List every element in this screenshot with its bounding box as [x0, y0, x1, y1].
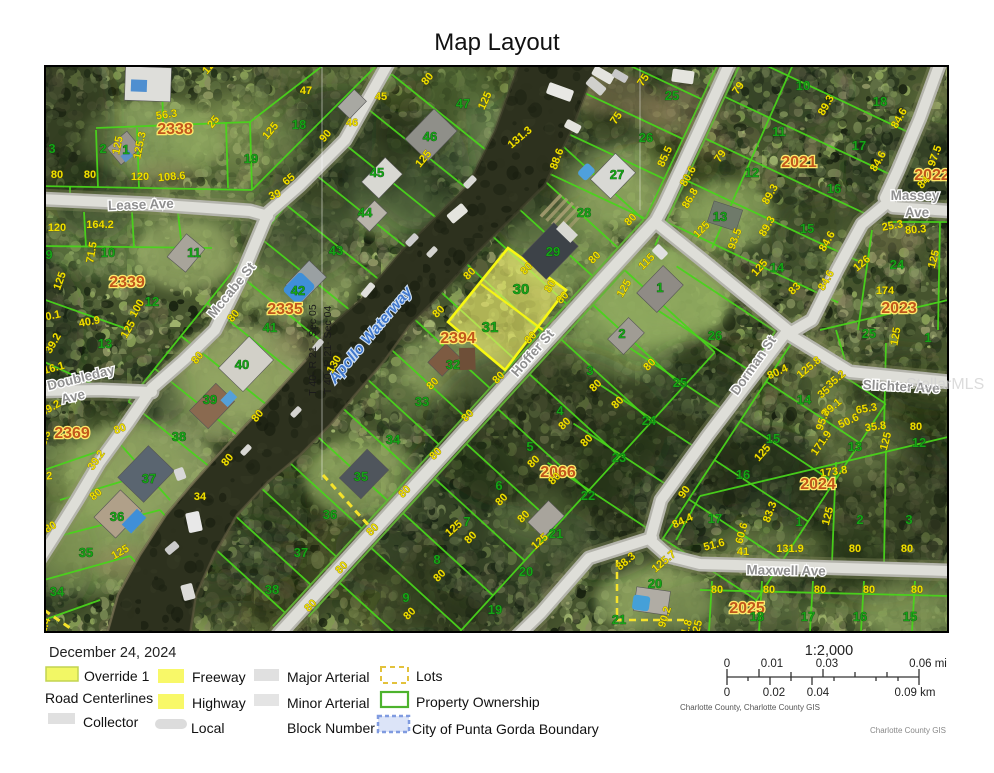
svg-text:41: 41 [263, 320, 277, 335]
svg-text:34: 34 [386, 432, 401, 447]
svg-text:35: 35 [79, 545, 93, 560]
svg-text:30: 30 [513, 281, 530, 298]
svg-text:0.04: 0.04 [807, 687, 830, 699]
svg-text:33: 33 [415, 394, 429, 409]
svg-text:174: 174 [876, 285, 895, 297]
svg-text:15: 15 [766, 431, 780, 446]
svg-text:9: 9 [45, 247, 52, 262]
svg-text:80: 80 [763, 584, 775, 596]
svg-text:11: 11 [772, 124, 786, 139]
svg-text:19: 19 [244, 151, 258, 166]
svg-text:23: 23 [612, 450, 626, 465]
svg-text:2394: 2394 [440, 330, 476, 347]
svg-text:80: 80 [863, 584, 875, 596]
svg-text:13: 13 [848, 439, 862, 454]
svg-text:25: 25 [673, 375, 687, 390]
svg-text:Block Number: Block Number [287, 720, 375, 736]
svg-text:2339: 2339 [109, 274, 145, 291]
svg-text:39.2: 39.2 [31, 470, 53, 484]
svg-text:34: 34 [50, 584, 65, 599]
svg-text:80: 80 [51, 169, 63, 181]
svg-text:16: 16 [827, 181, 841, 196]
svg-text:Charlotte County, Charlotte Co: Charlotte County, Charlotte County GIS [680, 703, 820, 712]
svg-text:0.01: 0.01 [761, 658, 783, 670]
svg-text:3: 3 [586, 363, 593, 378]
svg-text:12: 12 [912, 435, 926, 450]
svg-text:Charlotte County GIS: Charlotte County GIS [870, 726, 946, 735]
svg-text:80: 80 [711, 584, 723, 596]
svg-text:38: 38 [265, 582, 279, 597]
svg-text:2024: 2024 [800, 476, 836, 493]
svg-text:Road Centerlines: Road Centerlines [45, 690, 153, 706]
svg-text:164.2: 164.2 [86, 219, 114, 231]
svg-text:Property Ownership: Property Ownership [416, 694, 540, 710]
svg-text:12: 12 [145, 294, 159, 309]
svg-text:38: 38 [172, 429, 186, 444]
svg-text:13: 13 [713, 209, 727, 224]
svg-text:40: 40 [235, 357, 249, 372]
svg-text:1:2,000: 1:2,000 [805, 643, 853, 659]
svg-text:35: 35 [354, 469, 368, 484]
svg-text:18: 18 [873, 94, 887, 109]
svg-text:32: 32 [446, 357, 460, 372]
svg-text:Major Arterial: Major Arterial [287, 669, 369, 685]
svg-text:December 24, 2024: December 24, 2024 [49, 645, 176, 661]
svg-text:17: 17 [708, 511, 722, 526]
svg-text:22: 22 [581, 488, 595, 503]
svg-text:20: 20 [648, 576, 662, 591]
svg-text:21: 21 [549, 526, 563, 541]
svg-text:39: 39 [203, 392, 217, 407]
svg-text:24: 24 [642, 413, 657, 428]
svg-text:43: 43 [329, 243, 343, 258]
svg-text:6: 6 [495, 478, 502, 493]
svg-text:Maxwell Ave: Maxwell Ave [746, 562, 826, 578]
svg-text:36: 36 [110, 509, 124, 524]
svg-text:28: 28 [577, 205, 591, 220]
svg-text:Highway: Highway [192, 695, 246, 711]
svg-text:Lease Ave: Lease Ave [108, 196, 175, 213]
svg-text:0.06 mi: 0.06 mi [909, 658, 947, 670]
svg-text:2338: 2338 [157, 121, 193, 138]
svg-text:Lots: Lots [416, 668, 442, 684]
svg-text:42: 42 [291, 283, 305, 298]
svg-text:21: 21 [612, 612, 626, 627]
svg-text:2: 2 [856, 512, 863, 527]
svg-text:T 40- R 21 - Sec 05: T 40- R 21 - Sec 05 [307, 304, 319, 396]
svg-text:31: 31 [482, 319, 499, 336]
svg-text:2335: 2335 [267, 301, 303, 318]
svg-text:15: 15 [800, 221, 814, 236]
svg-text:80: 80 [910, 421, 922, 433]
svg-text:0.03: 0.03 [816, 658, 838, 670]
svg-text:80: 80 [901, 543, 913, 555]
svg-text:47: 47 [300, 85, 312, 97]
svg-text:16: 16 [736, 467, 750, 482]
svg-text:Collector: Collector [83, 714, 139, 730]
svg-text:StellarMLS: StellarMLS [906, 376, 984, 393]
svg-text:19: 19 [488, 602, 502, 617]
svg-text:0: 0 [724, 658, 730, 670]
svg-text:41: 41 [737, 546, 749, 558]
svg-text:44: 44 [358, 205, 373, 220]
svg-text:45: 45 [375, 91, 387, 103]
svg-text:27: 27 [610, 167, 624, 182]
svg-text:15: 15 [903, 609, 917, 624]
svg-text:3: 3 [48, 141, 55, 156]
svg-text:37: 37 [294, 545, 308, 560]
svg-text:29: 29 [546, 244, 560, 259]
svg-text:36: 36 [323, 507, 337, 522]
svg-text:Override 1: Override 1 [84, 668, 150, 684]
svg-text:2021: 2021 [781, 154, 817, 171]
svg-text:11: 11 [187, 245, 201, 260]
svg-text:24: 24 [890, 257, 905, 272]
svg-text:Local: Local [191, 720, 224, 736]
svg-text:2023: 2023 [881, 300, 917, 317]
svg-text:2: 2 [618, 326, 625, 341]
svg-text:25: 25 [862, 326, 876, 341]
svg-text:10: 10 [796, 78, 810, 93]
svg-text:17: 17 [852, 138, 866, 153]
svg-text:2: 2 [99, 141, 106, 156]
svg-text:3: 3 [905, 512, 912, 527]
svg-text:12: 12 [745, 165, 759, 180]
svg-text:108.6: 108.6 [158, 170, 186, 184]
svg-text:80: 80 [849, 543, 861, 555]
svg-text:14: 14 [797, 392, 812, 407]
svg-text:46: 46 [423, 129, 437, 144]
svg-text:0.02: 0.02 [763, 687, 785, 699]
svg-text:18: 18 [292, 117, 306, 132]
svg-text:1: 1 [656, 280, 663, 295]
svg-text:80: 80 [814, 584, 826, 596]
svg-text:Map Layout: Map Layout [434, 29, 560, 56]
svg-text:0: 0 [753, 19, 759, 31]
svg-text:46: 46 [346, 117, 358, 129]
svg-text:10: 10 [101, 245, 115, 260]
svg-text:Freeway: Freeway [192, 669, 246, 685]
svg-text:47: 47 [456, 96, 470, 111]
svg-text:20: 20 [519, 564, 533, 579]
svg-text:16: 16 [853, 609, 867, 624]
svg-text:80: 80 [911, 584, 923, 596]
svg-text:T 40- R 21- Sec 04: T 40- R 21- Sec 04 [322, 306, 334, 395]
svg-text:5: 5 [526, 439, 533, 454]
svg-text:80.3: 80.3 [905, 223, 927, 237]
svg-text:45: 45 [370, 165, 384, 180]
svg-text:9: 9 [402, 590, 409, 605]
svg-text:1: 1 [924, 330, 931, 345]
svg-text:120: 120 [48, 222, 66, 234]
svg-text:1: 1 [795, 514, 802, 529]
svg-text:0.09 km: 0.09 km [895, 687, 936, 699]
svg-text:Massey: Massey [891, 188, 940, 203]
svg-text:17: 17 [801, 609, 815, 624]
svg-text:25: 25 [665, 88, 679, 103]
svg-text:8: 8 [433, 552, 440, 567]
svg-text:2369: 2369 [54, 425, 90, 442]
svg-text:26: 26 [708, 328, 722, 343]
svg-text:Ave: Ave [905, 205, 930, 220]
svg-text:131.9: 131.9 [776, 543, 804, 555]
svg-text:Minor Arterial: Minor Arterial [287, 695, 369, 711]
svg-text:120: 120 [131, 171, 149, 183]
svg-text:37: 37 [142, 471, 156, 486]
svg-text:14: 14 [770, 260, 785, 275]
svg-text:80: 80 [84, 169, 96, 181]
svg-text:18: 18 [750, 609, 764, 624]
svg-text:34: 34 [194, 491, 207, 503]
svg-text:13: 13 [98, 336, 112, 351]
svg-text:26: 26 [639, 130, 653, 145]
svg-text:City of Punta Gorda Boundary: City of Punta Gorda Boundary [412, 721, 599, 737]
svg-text:0: 0 [724, 687, 730, 699]
